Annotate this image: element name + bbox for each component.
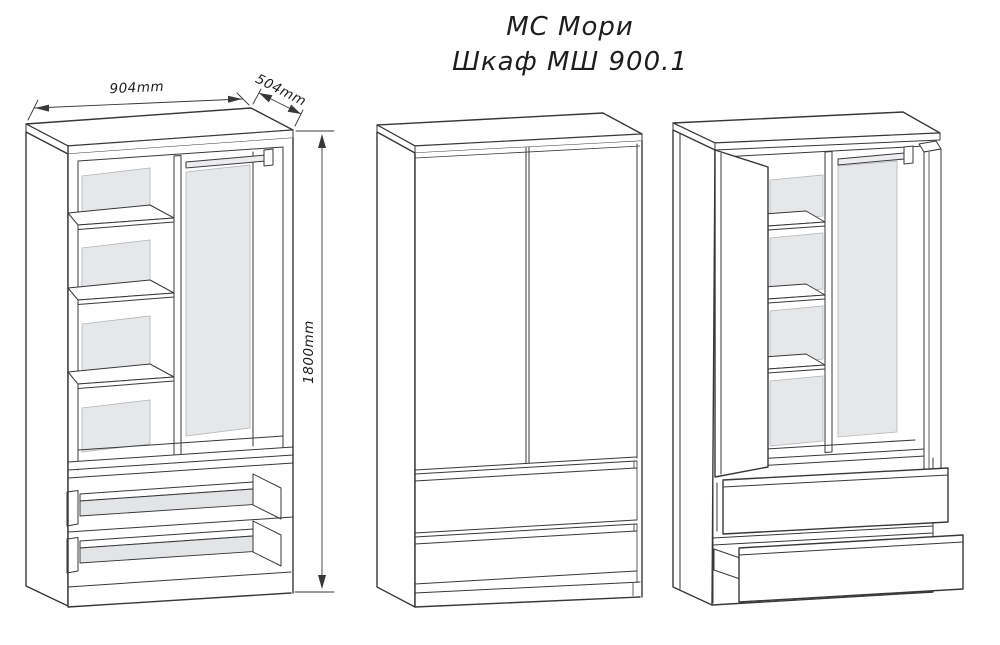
view-open-perspective xyxy=(673,112,963,605)
arrow-left-icon xyxy=(35,105,49,112)
drawer-open-top xyxy=(723,468,948,534)
arrow-right-icon xyxy=(228,96,242,103)
view-closed xyxy=(377,113,642,607)
technical-drawing-page: МС Мори Шкаф МШ 900.1 xyxy=(0,0,1000,645)
door-open-left xyxy=(715,150,768,477)
arrow-down-icon xyxy=(318,575,326,589)
arrow-upleft-icon xyxy=(259,93,272,102)
center-divider xyxy=(174,156,181,464)
left-side-panel xyxy=(673,130,715,605)
wardrobe-drawing: 904mm 504mm 1800mm xyxy=(0,0,1000,645)
left-side-panel xyxy=(377,132,415,607)
view-open-front: 904mm 504mm 1800mm xyxy=(26,71,334,607)
center-divider xyxy=(825,152,832,453)
dim-width-label: 904mm xyxy=(109,79,164,97)
arrow-up-icon xyxy=(318,134,326,148)
dim-height-label: 1800mm xyxy=(301,320,317,384)
dimension-height: 1800mm xyxy=(295,131,334,592)
left-side-panel xyxy=(26,132,68,606)
